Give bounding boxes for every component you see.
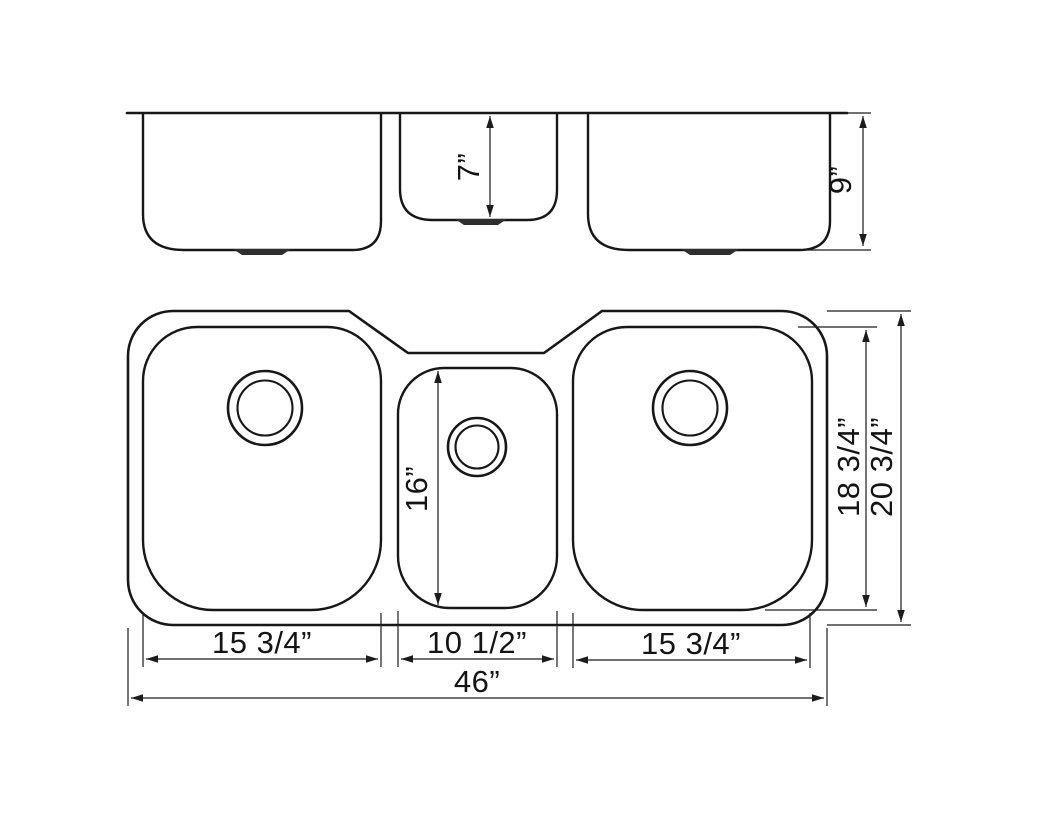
front-middle-drain-icon [455, 219, 507, 225]
sink-diagram: 7” 9” 16” 18 3/4” 20 3/4” 15 3/4 [0, 0, 1040, 840]
plan-right-drain-inner-icon [663, 381, 718, 436]
front-right-drain-icon [681, 249, 739, 255]
dimension-label-depth: 9” [823, 166, 858, 195]
front-elevation-view [127, 113, 847, 255]
plan-middle-drain-icon [448, 418, 506, 476]
plan-view [128, 311, 827, 625]
plan-dimensions: 16” 18 3/4” 20 3/4” 15 3/4” 10 1/2” 15 3… [128, 311, 911, 706]
plan-left-drain-icon [228, 371, 302, 445]
front-left-drain-icon [233, 249, 291, 255]
plan-left-drain-inner-icon [238, 381, 293, 436]
plan-middle-drain-inner-icon [456, 426, 499, 469]
dimension-label-middle-width: 10 1/2” [427, 625, 527, 660]
dimension-label-overall-depth: 20 3/4” [864, 417, 899, 517]
front-dimensions: 7” 9” [451, 113, 871, 250]
front-right-bowl [588, 113, 830, 250]
dimension-label-middle-depth: 7” [451, 153, 486, 182]
dimension-label-right-width: 15 3/4” [641, 626, 741, 661]
plan-right-drain-icon [653, 371, 727, 445]
plan-right-bowl [573, 327, 812, 610]
dimension-label-side-length: 18 3/4” [831, 417, 866, 517]
dimension-label-overall-width: 46” [454, 664, 500, 699]
front-left-bowl [143, 113, 381, 250]
dimension-label-middle-length: 16” [399, 466, 434, 512]
dimension-label-left-width: 15 3/4” [212, 625, 312, 660]
plan-left-bowl [143, 327, 381, 610]
drawing-canvas: 7” 9” 16” 18 3/4” 20 3/4” 15 3/4 [0, 0, 1040, 840]
